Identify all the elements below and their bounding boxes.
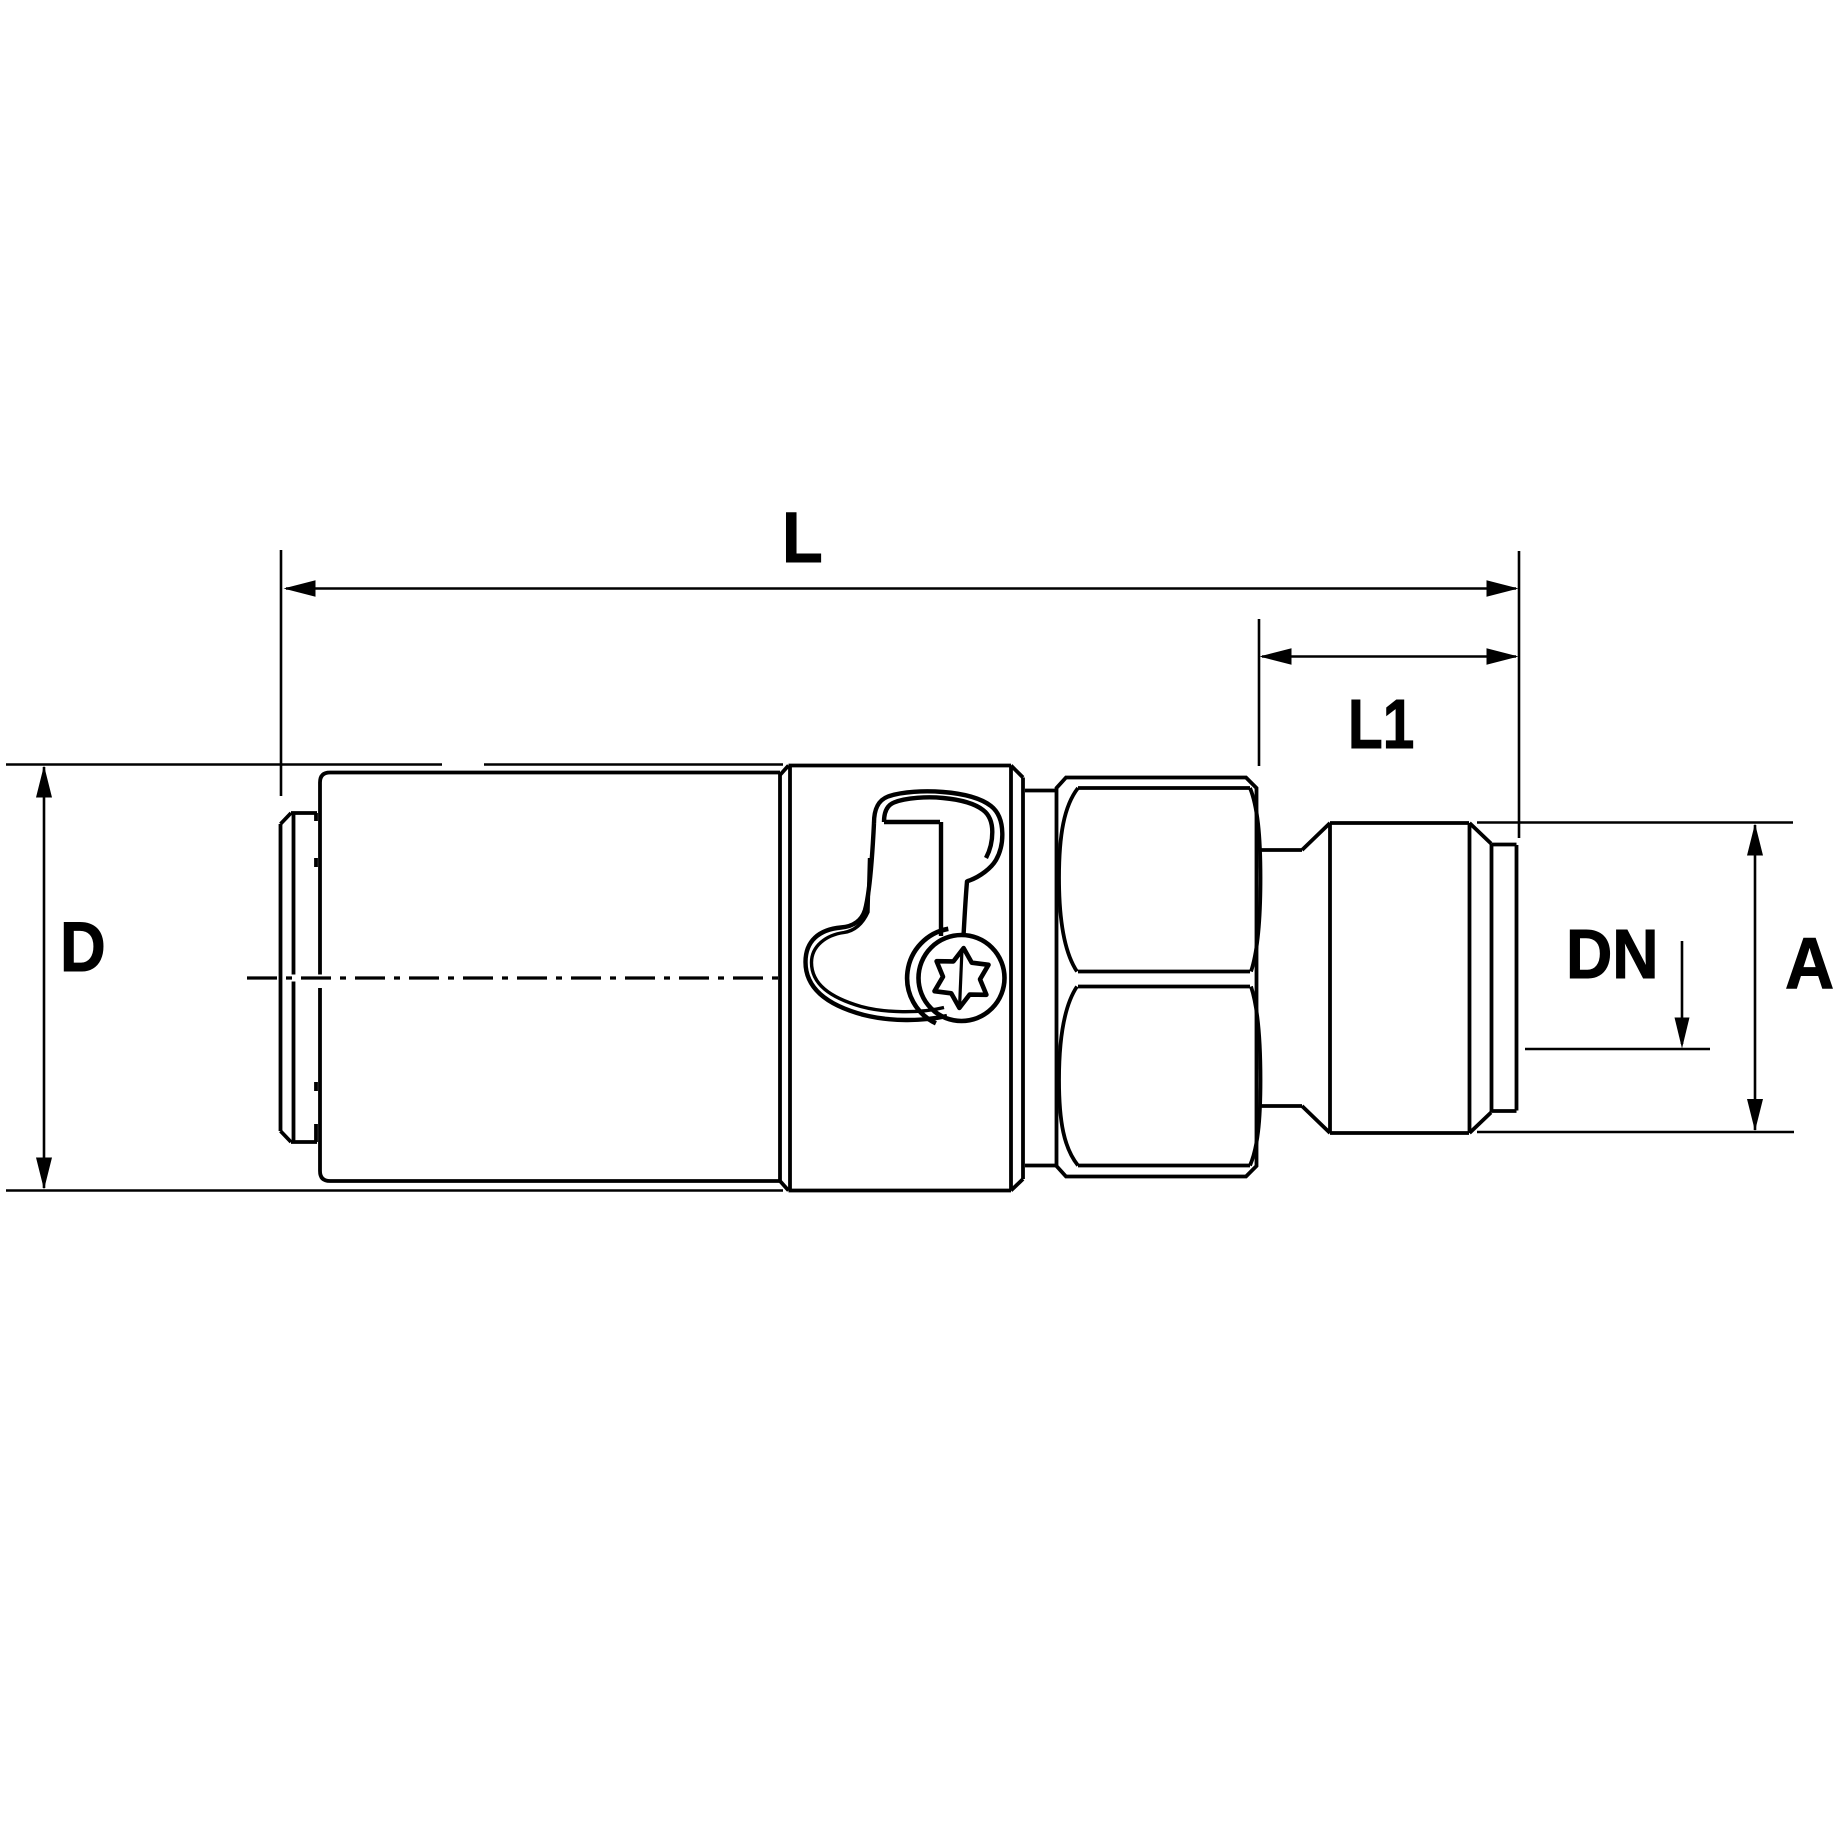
svg-text:A: A	[1785, 923, 1834, 1004]
svg-text:D: D	[60, 907, 106, 986]
svg-text:L: L	[782, 499, 823, 578]
svg-text:DN: DN	[1566, 915, 1659, 993]
svg-text:L1: L1	[1348, 685, 1414, 763]
